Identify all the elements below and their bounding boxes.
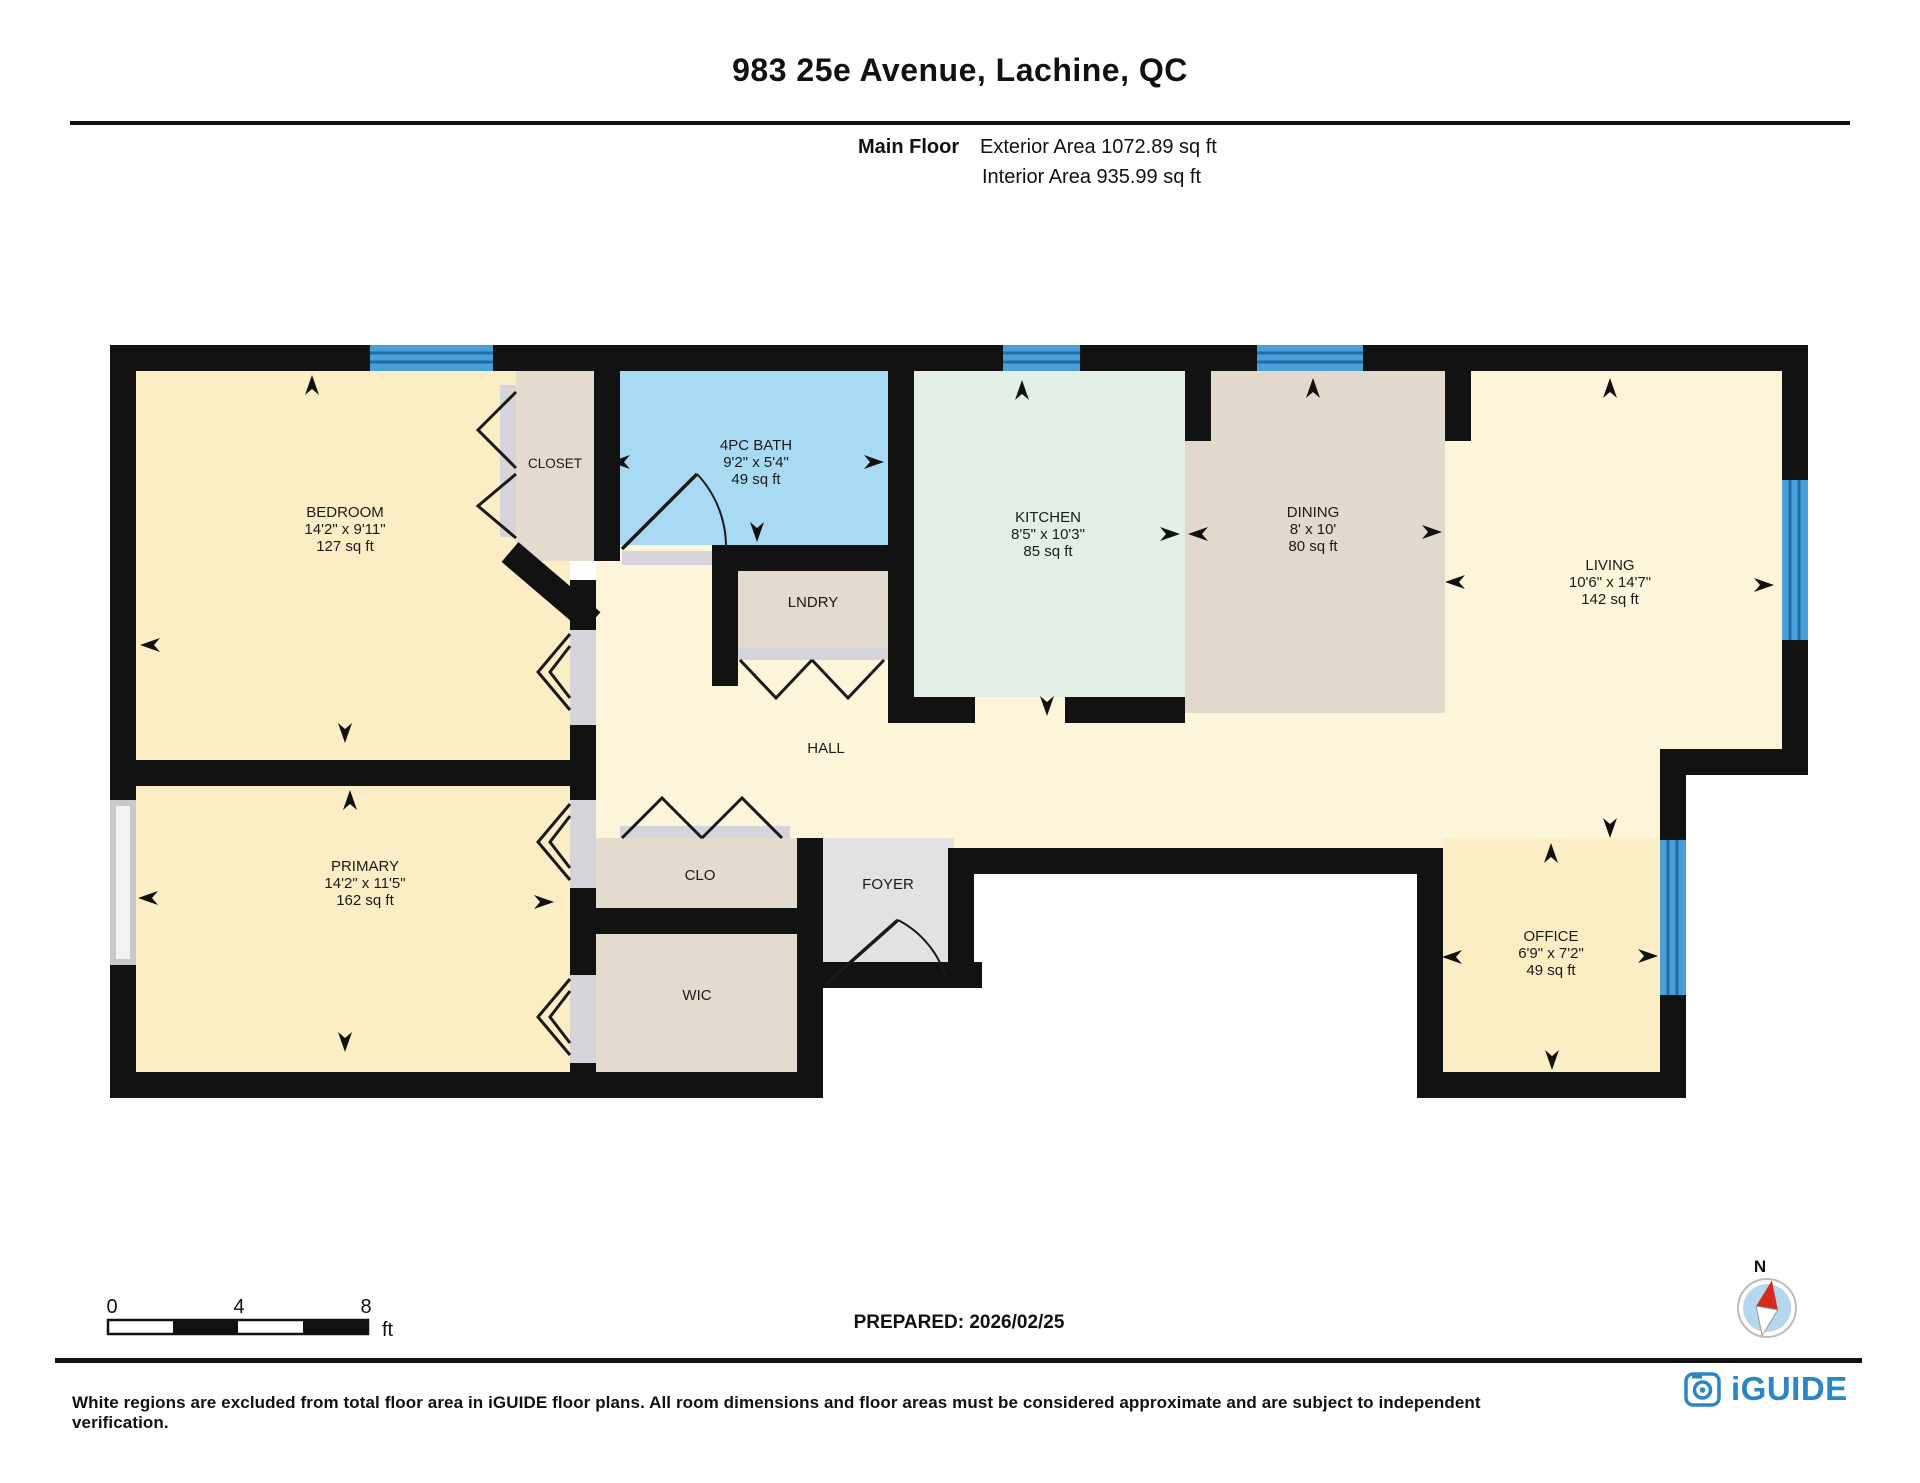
svg-text:14'2" x 11'5": 14'2" x 11'5" [324,875,405,892]
svg-text:8' x 10': 8' x 10' [1290,521,1337,538]
compass: N [1738,1257,1796,1337]
room-primary [136,786,570,1072]
svg-text:127 sq ft: 127 sq ft [316,538,374,555]
footer-disclaimer: White regions are excluded from total fl… [72,1393,1572,1433]
svg-text:14'2" x 9'11": 14'2" x 9'11" [304,521,385,538]
iguide-camera-icon [1683,1368,1725,1410]
prepared-date: PREPARED: 2026/02/25 [854,1312,1065,1333]
iguide-logo-text: iGUIDE [1731,1369,1848,1409]
wic-label: WIC [682,987,711,1004]
scale-tick-8: 8 [360,1296,371,1318]
svg-text:162 sq ft: 162 sq ft [336,892,394,909]
kitchen-label: KITCHEN [1015,509,1081,526]
compass-north-label: N [1754,1257,1766,1276]
scale-tick-4: 4 [233,1296,244,1318]
iguide-logo: iGUIDE [1683,1368,1848,1410]
scale-unit: ft [382,1319,394,1341]
scale-bar: 0 4 8 ft [106,1296,393,1341]
primary-label: PRIMARY [331,858,399,875]
svg-text:8'5" x 10'3": 8'5" x 10'3" [1011,526,1085,543]
footer-divider [55,1358,1862,1363]
hall-label: HALL [807,740,845,757]
kitchen-window [1003,345,1080,371]
floor-plan: BEDROOM 14'2" x 9'11" 127 sq ft CLOSET 4… [0,0,1920,1483]
svg-text:142 sq ft: 142 sq ft [1581,591,1639,608]
living-window [1782,480,1808,640]
svg-text:6'9" x 7'2": 6'9" x 7'2" [1518,945,1584,962]
dining-window [1257,345,1363,371]
svg-text:85 sq ft: 85 sq ft [1023,543,1073,560]
svg-text:9'2" x 5'4": 9'2" x 5'4" [723,454,789,471]
office-label: OFFICE [1524,928,1579,945]
bedroom-window [370,345,493,371]
bath-label: 4PC BATH [720,437,792,454]
scale-tick-0: 0 [106,1296,117,1318]
office-window [1660,840,1686,995]
foyer-label: FOYER [862,876,914,893]
bedroom-label: BEDROOM [306,504,384,521]
lndry-label: LNDRY [788,594,839,611]
living-label: LIVING [1585,557,1634,574]
closet-label: CLOSET [528,456,582,471]
svg-text:10'6" x 14'7": 10'6" x 14'7" [1569,574,1651,591]
svg-text:49 sq ft: 49 sq ft [731,471,781,488]
svg-text:49 sq ft: 49 sq ft [1526,962,1576,979]
clo-label: CLO [685,867,716,884]
primary-left-window [110,800,136,965]
room-foyer [822,838,954,962]
dining-label: DINING [1287,504,1340,521]
svg-text:80 sq ft: 80 sq ft [1288,538,1338,555]
